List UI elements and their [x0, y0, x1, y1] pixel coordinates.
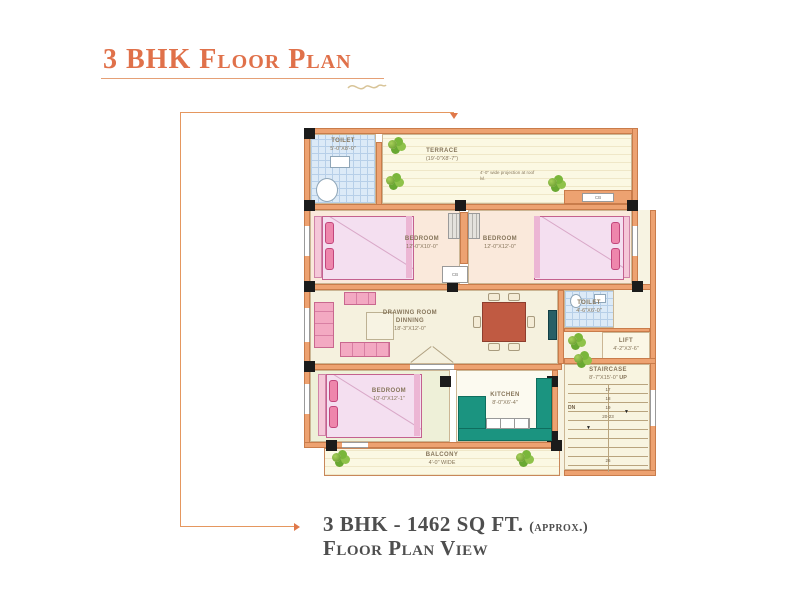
column	[632, 281, 643, 292]
column	[304, 281, 315, 292]
bed-footboard	[414, 374, 420, 436]
label-lift: LIFT 4'-2"X3'-6"	[604, 338, 648, 353]
room-dim: 12'-0"X12'-0"	[470, 244, 530, 251]
pillow	[325, 222, 334, 244]
pillow	[611, 222, 620, 244]
chair	[508, 343, 520, 351]
label-drawing-room: DRAWING ROOM DINNING 18'-3"X12'-0"	[374, 310, 446, 333]
footer-view-line: Floor Plan View	[323, 536, 588, 560]
bed-headboard	[314, 216, 322, 278]
room-name: DRAWING ROOM	[374, 310, 446, 318]
stair-step-label: 20-23	[596, 414, 620, 419]
size-text: 3 BHK - 1462 SQ FT.	[323, 512, 523, 536]
label-staircase: STAIRCASE 8'-7"X15'-0" UP	[570, 367, 646, 382]
pillow	[611, 248, 620, 270]
window	[304, 226, 310, 256]
sofa	[340, 342, 390, 357]
room-name: TERRACE	[402, 148, 482, 156]
plant-icon	[548, 178, 558, 188]
column	[304, 200, 315, 211]
room-name: BEDROOM	[356, 388, 422, 396]
window	[650, 390, 656, 426]
flourish-icon	[346, 80, 388, 94]
room-name: TOILET	[312, 138, 374, 146]
label-kitchen: KITCHEN 8'-0"X6'-4"	[478, 392, 532, 407]
wall-terrace-right	[632, 128, 638, 210]
wall-drawing-right	[558, 290, 564, 364]
chair	[473, 316, 481, 328]
room-dim: 18'-3"X12'-0"	[374, 326, 446, 333]
room-dim: 4'-0" WIDE	[382, 460, 502, 467]
wall-toilet-right	[376, 142, 382, 210]
title-underline	[101, 78, 384, 79]
column	[326, 440, 337, 451]
pillow	[325, 248, 334, 270]
washbasin	[330, 156, 350, 168]
stair-step-label: 19	[596, 405, 620, 410]
bed-headboard	[318, 374, 326, 436]
connector-line-left	[180, 112, 181, 527]
wall-top	[304, 128, 638, 134]
column	[455, 200, 466, 211]
room-dim: 10'-0"X12'-1"	[356, 396, 422, 403]
stair-arrow-icon: ▼	[586, 426, 591, 431]
room-name: BEDROOM	[470, 236, 530, 244]
room-dim: (19'-0"X8'-7")	[402, 156, 482, 163]
label-toilet-mid: TOILET 4'-6"X6'-0"	[565, 300, 613, 315]
floor-plan: CB CB	[302, 126, 658, 482]
window	[632, 226, 638, 256]
stair-dn-label: DN	[568, 405, 575, 411]
footer-caption: 3 BHK - 1462 SQ FT. (approx.) Floor Plan…	[323, 512, 588, 560]
chair	[488, 343, 500, 351]
room-name: TOILET	[565, 300, 613, 308]
page: 3 BHK Floor Plan	[0, 0, 800, 600]
plant-icon	[386, 176, 396, 186]
bed-footboard	[534, 216, 540, 278]
kitchen-counter	[458, 428, 552, 441]
room-name: BALCONY	[382, 452, 502, 460]
room-name: KITCHEN	[478, 392, 532, 400]
wall-toilet-mid-bottom	[564, 328, 650, 332]
plant-icon	[516, 453, 526, 463]
label-toilet-top: TOILET 5'-0"X8'-0"	[312, 138, 374, 153]
connector-line-bottom	[180, 526, 294, 527]
plant-icon	[388, 140, 398, 150]
connector-arrow-right-icon	[294, 523, 300, 531]
room-name: LIFT	[604, 338, 648, 346]
sofa	[314, 302, 334, 348]
stair-arrow-icon: ▼	[624, 410, 629, 415]
room-dim: 8'-7"X15'-0" UP	[570, 375, 646, 382]
wall-row1	[304, 204, 638, 210]
pillow	[329, 380, 338, 402]
window	[304, 308, 310, 342]
label-terrace: TERRACE (19'-0"X8'-7")	[402, 148, 482, 163]
page-title: 3 BHK Floor Plan	[103, 44, 352, 76]
kitchen-counter	[536, 378, 552, 434]
column	[627, 200, 638, 211]
stair-step-label: 17	[596, 387, 620, 392]
room-dim: 5'-0"X8'-0"	[312, 146, 374, 153]
room-dim: 8'-0"X6'-4"	[478, 400, 532, 407]
bed	[326, 374, 422, 438]
wc-fixture	[316, 178, 338, 202]
column	[304, 361, 315, 372]
room-name: STAIRCASE	[570, 367, 646, 375]
chair	[527, 316, 535, 328]
cupboard: CB	[582, 193, 614, 202]
window	[304, 384, 310, 414]
room-name: DINNING	[374, 318, 446, 326]
column	[440, 376, 451, 387]
tv-unit	[548, 310, 557, 340]
room-dim: 4'-2"X3'-6"	[604, 346, 648, 353]
chair	[508, 293, 520, 301]
approx-text: (approx.)	[529, 520, 588, 535]
entrance-opening	[410, 364, 454, 370]
terrace-note: 4'-0" wide projection at roof lvl.	[480, 170, 538, 182]
plant-icon	[574, 354, 584, 364]
label-bedroom-top-left: BEDROOM 12'-0"X10'-0"	[390, 236, 454, 251]
window	[342, 442, 368, 448]
wall-outer-right	[650, 210, 656, 476]
cupboard: CB	[442, 266, 468, 283]
column	[551, 440, 562, 451]
room-name: BEDROOM	[390, 236, 454, 244]
room-dim: 12'-0"X10'-0"	[390, 244, 454, 251]
stair-step-label: 26	[596, 458, 620, 463]
dining-table	[482, 302, 526, 342]
plant-icon	[332, 453, 342, 463]
connector-line-top	[180, 112, 454, 113]
pillow	[329, 406, 338, 428]
footer-size-line: 3 BHK - 1462 SQ FT. (approx.)	[323, 512, 588, 536]
wall-bedroom-divider	[460, 212, 468, 264]
connector-arrow-down-icon	[450, 113, 458, 119]
label-balcony: BALCONY 4'-0" WIDE	[382, 452, 502, 467]
wall-row2	[304, 284, 656, 290]
room-dim: 4'-6"X6'-0"	[565, 308, 613, 315]
kitchen-cabinets	[486, 418, 530, 429]
armchair	[344, 292, 376, 305]
label-bedroom-top-right: BEDROOM 12'-0"X12'-0"	[470, 236, 530, 251]
plant-icon	[568, 336, 578, 346]
stair-step-label: 18	[596, 396, 620, 401]
chair	[488, 293, 500, 301]
label-bedroom-bottom: BEDROOM 10'-0"X12'-1"	[356, 388, 422, 403]
